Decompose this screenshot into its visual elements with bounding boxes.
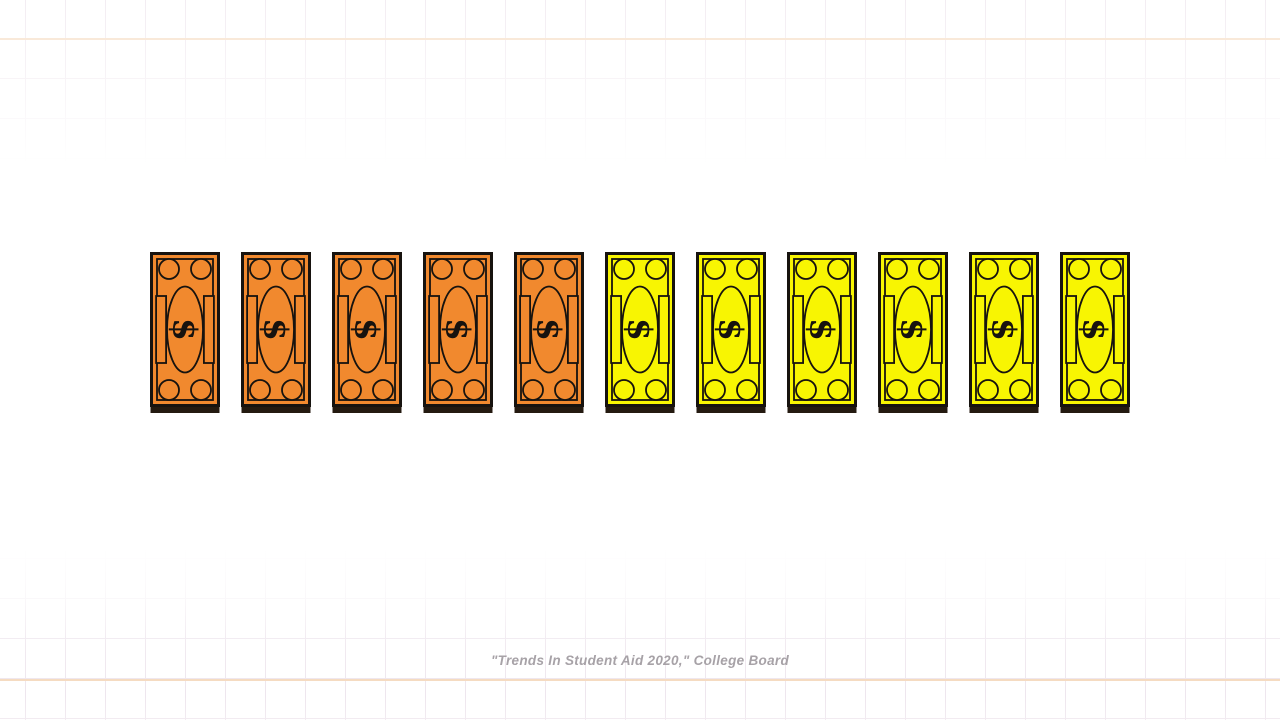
bill-corner-circle [432,380,452,400]
bill-corner-circle [1010,380,1030,400]
infographic-canvas: $ $ $ [0,0,1280,720]
bill-corner-circle [523,259,543,279]
bill-corner-circle [373,259,393,279]
bill-corner-circle [646,259,666,279]
bill-corner-circle [464,380,484,400]
dollar-bill-icon: $ [514,252,584,413]
bill-corner-circle [191,259,211,279]
dollar-sign-icon: $ [257,318,296,341]
dollar-sign-icon: $ [1076,318,1115,341]
svg-text:$: $ [257,318,296,341]
bill-corner-circle [978,259,998,279]
bill-corner-circle [373,380,393,400]
svg-text:$: $ [439,318,478,341]
bill-left-tab [975,296,985,363]
bill-corner-circle [555,259,575,279]
bill-corner-circle [614,380,634,400]
bill-corner-circle [1101,259,1121,279]
svg-text:$: $ [530,318,569,341]
bill-left-tab [247,296,257,363]
bill-corner-circle [919,380,939,400]
bill-corner-circle [159,259,179,279]
dollar-sign-icon: $ [166,318,205,341]
dollar-sign-icon: $ [530,318,569,341]
dollar-sign-icon: $ [803,318,842,341]
bill-corner-circle [705,380,725,400]
dollar-sign-icon: $ [985,318,1024,341]
bill-corner-circle [555,380,575,400]
bill-corner-circle [523,380,543,400]
bill-left-tab [156,296,166,363]
bill-corner-circle [191,380,211,400]
dollar-bill-icon: $ [605,252,675,413]
dollar-bill-icon: $ [878,252,948,413]
svg-text:$: $ [348,318,387,341]
bill-corner-circle [887,259,907,279]
bill-corner-circle [341,259,361,279]
bill-corner-circle [432,259,452,279]
bill-corner-circle [614,259,634,279]
bill-corner-circle [464,259,484,279]
bill-left-tab [520,296,530,363]
bill-left-tab [611,296,621,363]
dollar-sign-icon: $ [712,318,751,341]
bill-corner-circle [1101,380,1121,400]
dollar-bill-icon: $ [332,252,402,413]
svg-text:$: $ [712,318,751,341]
bill-corner-circle [1069,380,1089,400]
svg-text:$: $ [894,318,933,341]
dollar-bill-icon: $ [150,252,220,413]
dollar-bill-icon: $ [696,252,766,413]
dollar-bill-icon: $ [423,252,493,413]
bill-corner-circle [828,259,848,279]
dollar-bill-icon: $ [969,252,1039,413]
bill-corner-circle [737,259,757,279]
dollar-bill-icon: $ [787,252,857,413]
dollar-sign-icon: $ [894,318,933,341]
bill-corner-circle [282,259,302,279]
bill-corner-circle [887,380,907,400]
dollar-bill-icon: $ [241,252,311,413]
bill-corner-circle [282,380,302,400]
bill-corner-circle [737,380,757,400]
bill-corner-circle [1069,259,1089,279]
bill-corner-circle [919,259,939,279]
bill-left-tab [702,296,712,363]
grid-accent-line [0,679,1280,681]
bill-corner-circle [341,380,361,400]
bill-left-tab [1066,296,1076,363]
svg-text:$: $ [985,318,1024,341]
bill-left-tab [793,296,803,363]
bill-left-tab [884,296,894,363]
dollar-sign-icon: $ [621,318,660,341]
dollar-sign-icon: $ [348,318,387,341]
svg-text:$: $ [803,318,842,341]
dollar-bill-icon: $ [1060,252,1130,413]
bill-corner-circle [1010,259,1030,279]
dollar-sign-icon: $ [439,318,478,341]
svg-text:$: $ [1076,318,1115,341]
bill-corner-circle [828,380,848,400]
bill-corner-circle [796,259,816,279]
bill-corner-circle [250,259,270,279]
svg-text:$: $ [166,318,205,341]
bill-corner-circle [796,380,816,400]
bill-corner-circle [978,380,998,400]
bill-corner-circle [705,259,725,279]
bill-corner-circle [250,380,270,400]
bill-corner-circle [646,380,666,400]
grid-accent-line [0,38,1280,40]
bill-corner-circle [159,380,179,400]
svg-text:$: $ [621,318,660,341]
bill-left-tab [338,296,348,363]
bills-row: $ $ $ [0,252,1280,413]
bill-left-tab [429,296,439,363]
source-citation: "Trends In Student Aid 2020," College Bo… [0,653,1280,668]
